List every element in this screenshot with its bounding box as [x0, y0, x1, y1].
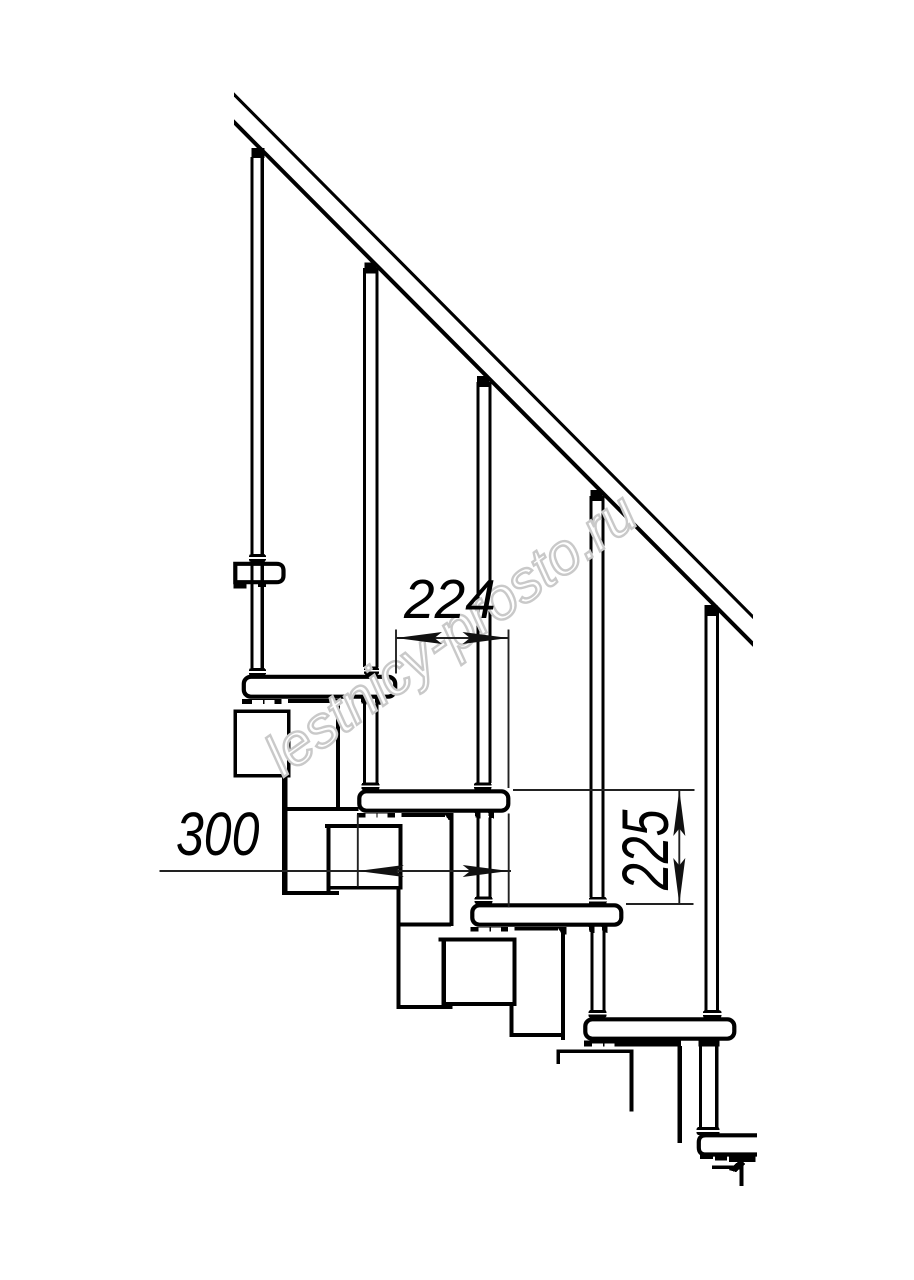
svg-text:300: 300 [176, 800, 259, 868]
svg-text:225: 225 [610, 809, 683, 891]
svg-text:224: 224 [403, 568, 496, 630]
